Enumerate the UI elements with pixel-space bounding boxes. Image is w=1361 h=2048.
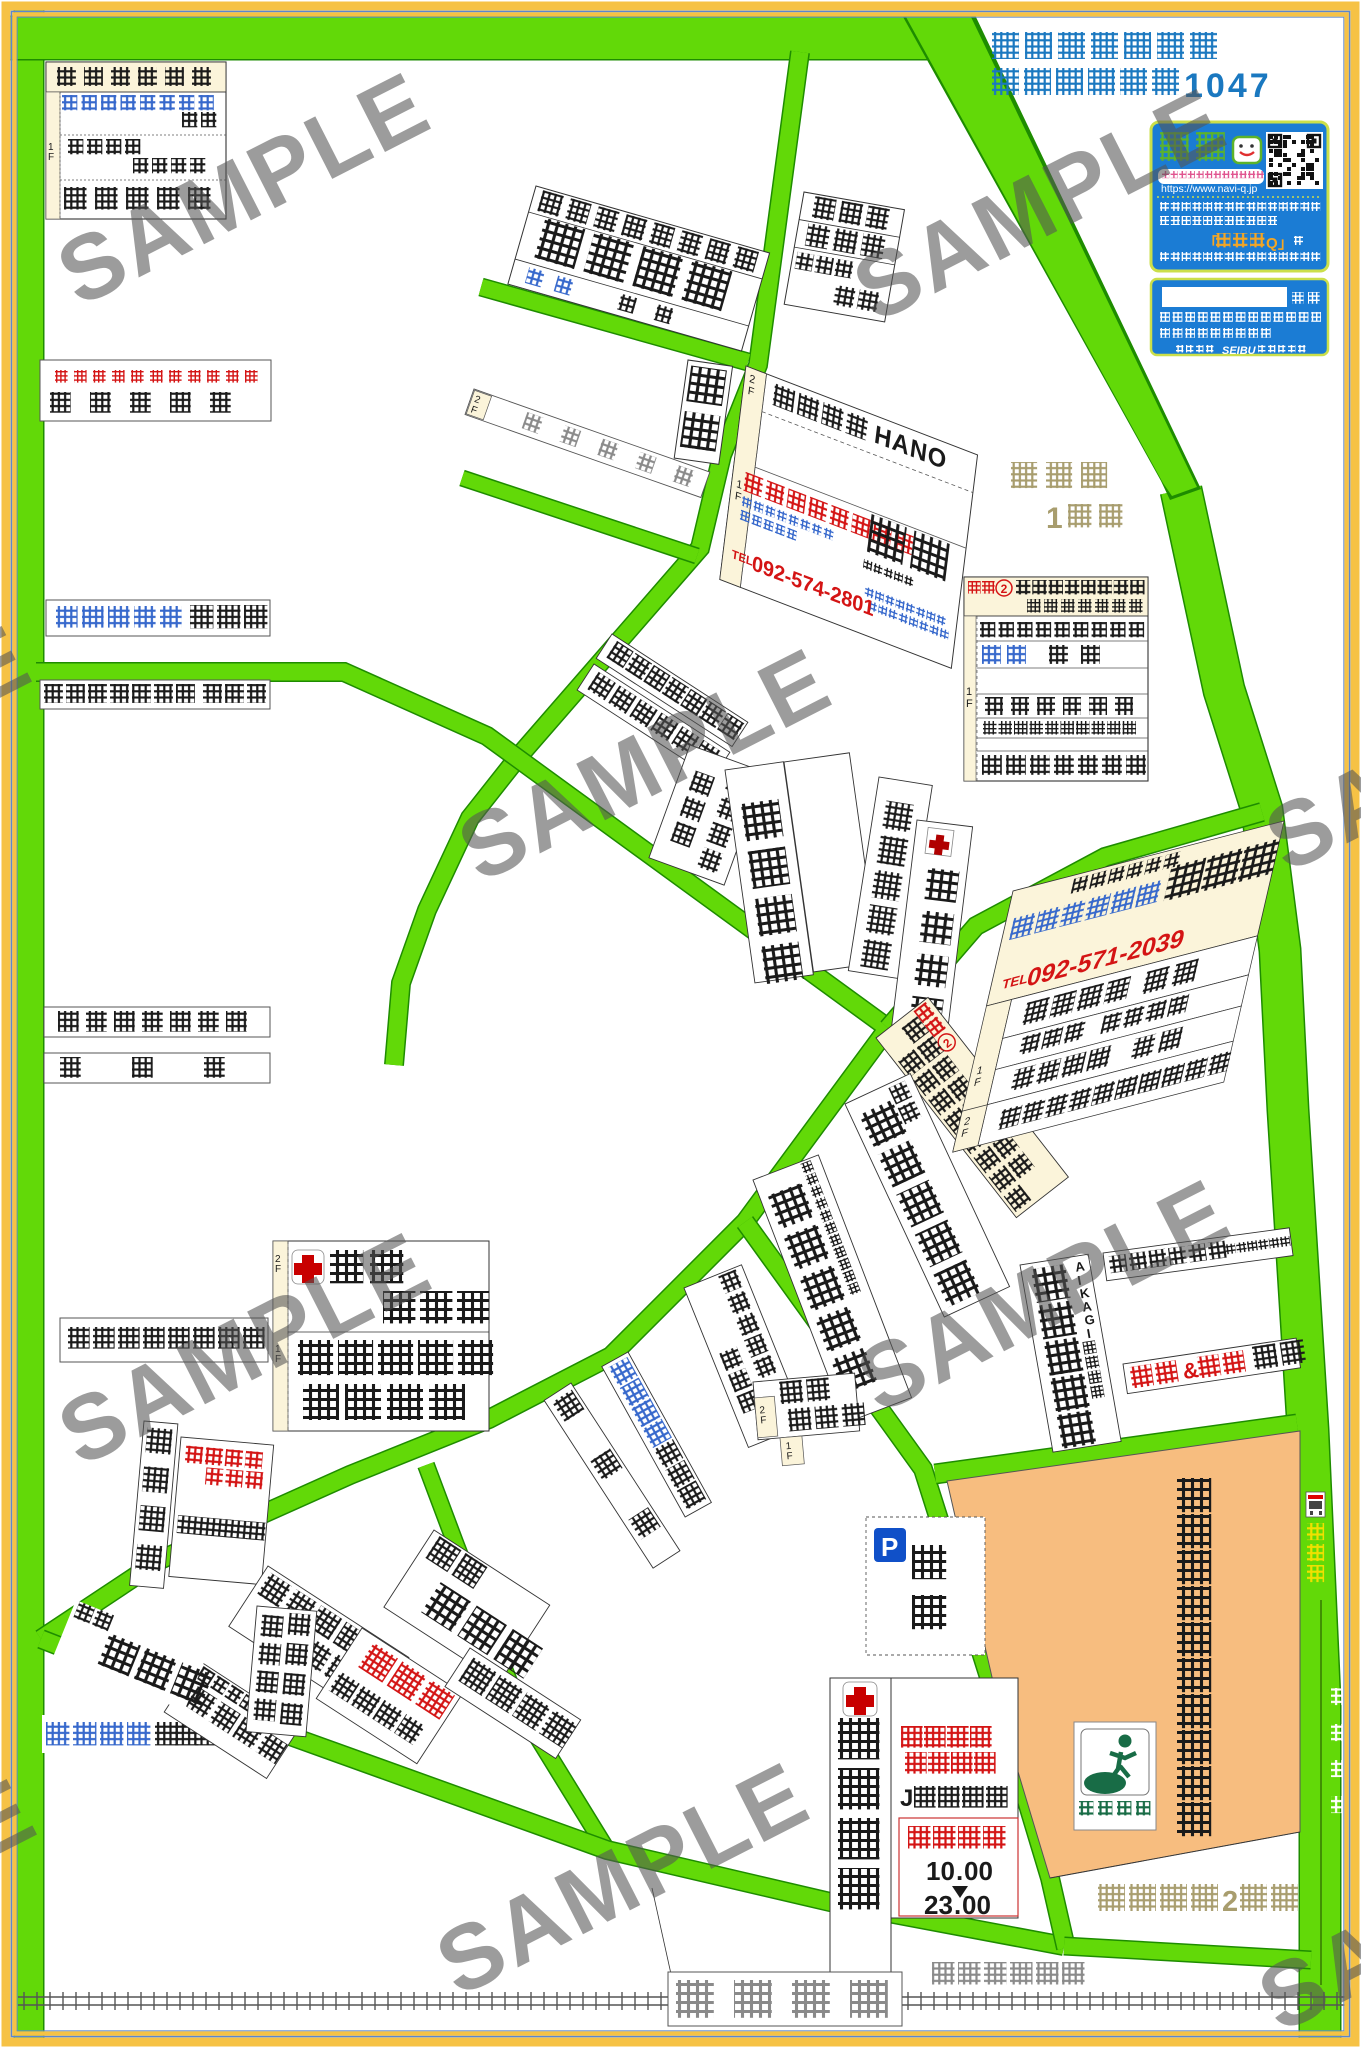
svg-text:F: F [760,1415,767,1426]
svg-text:10: 10 [926,1856,955,1886]
svg-text:J: J [900,1785,913,1812]
svg-text:1: 1 [966,686,972,698]
svg-text:P: P [881,1532,898,1562]
svg-text:.: . [956,1856,963,1886]
svg-text:23: 23 [924,1890,953,1920]
svg-text:」: 」 [1278,235,1293,252]
svg-text:F: F [48,152,54,163]
svg-text:2: 2 [1222,1886,1238,1918]
svg-text:.: . [954,1890,961,1920]
svg-text:1: 1 [1046,502,1063,535]
svg-text:00: 00 [964,1856,993,1886]
svg-text:SEIBU: SEIBU [1222,345,1257,357]
svg-text:F: F [966,698,973,710]
svg-text:Q: Q [1266,235,1278,252]
svg-text:2: 2 [1001,582,1008,596]
svg-text:F: F [786,1451,793,1462]
svg-text:「: 「 [1203,234,1218,252]
svg-text:00: 00 [962,1890,991,1920]
